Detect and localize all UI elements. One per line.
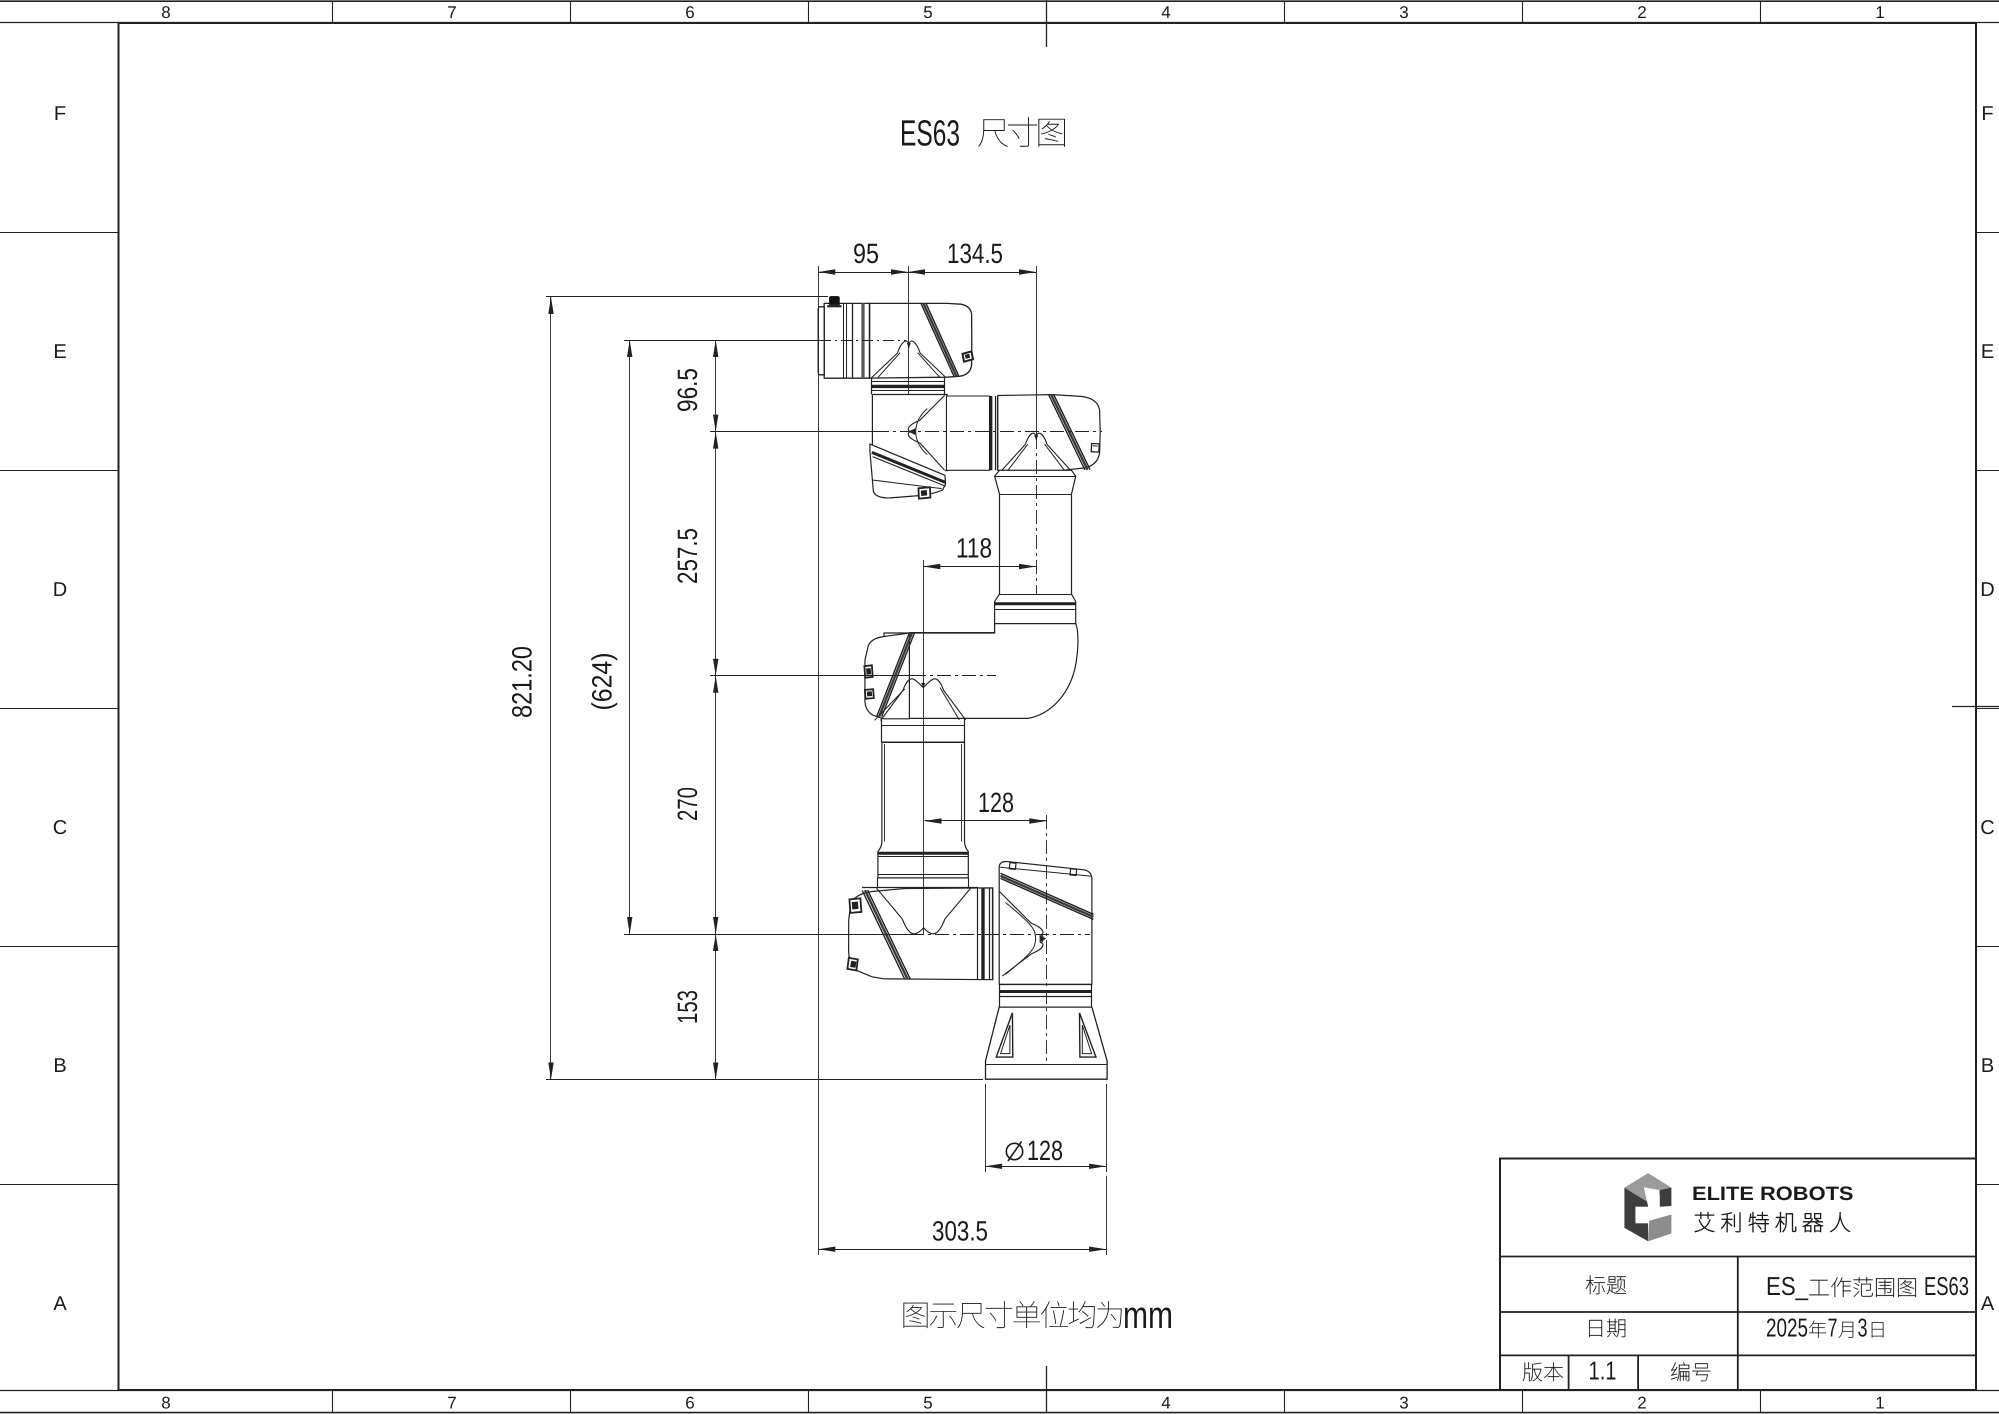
svg-text:96.5: 96.5 [672, 368, 703, 412]
svg-text:2: 2 [1637, 1394, 1646, 1413]
svg-text:821.20: 821.20 [507, 646, 538, 718]
svg-text:95: 95 [853, 238, 879, 269]
svg-text:7: 7 [447, 1394, 456, 1413]
svg-text:8: 8 [161, 3, 170, 22]
svg-text:3: 3 [1858, 1313, 1868, 1343]
svg-text:270: 270 [672, 787, 703, 821]
svg-text:118: 118 [956, 533, 992, 564]
svg-text:1: 1 [1875, 3, 1884, 22]
svg-text:2: 2 [1637, 3, 1646, 22]
svg-text:8: 8 [161, 1394, 170, 1413]
svg-text:5: 5 [923, 3, 932, 22]
svg-text:3: 3 [1399, 1394, 1408, 1413]
svg-text:ELITE ROBOTS: ELITE ROBOTS [1692, 1183, 1854, 1205]
svg-text:E: E [53, 341, 66, 363]
svg-text:ES63: ES63 [900, 113, 960, 154]
svg-text:7: 7 [1828, 1313, 1838, 1343]
svg-text:D: D [1980, 579, 1994, 601]
svg-text:1: 1 [1875, 1394, 1884, 1413]
svg-text:257.5: 257.5 [672, 528, 703, 584]
svg-text:C: C [1980, 817, 1994, 839]
svg-text:6: 6 [685, 1394, 694, 1413]
svg-text:128: 128 [1027, 1135, 1063, 1166]
svg-text:5: 5 [923, 1394, 932, 1413]
svg-text:2025: 2025 [1766, 1313, 1808, 1343]
svg-text:B: B [1981, 1055, 1994, 1077]
svg-text:F: F [54, 103, 66, 125]
svg-text:C: C [53, 817, 67, 839]
svg-text:B: B [53, 1055, 66, 1077]
svg-text:mm: mm [1123, 1295, 1173, 1337]
svg-text:ES63: ES63 [1924, 1271, 1969, 1301]
svg-text:(624): (624) [587, 653, 618, 711]
svg-text:1.1: 1.1 [1589, 1356, 1617, 1386]
svg-text:128: 128 [978, 787, 1014, 818]
svg-text:153: 153 [672, 990, 703, 1024]
svg-text:D: D [53, 579, 67, 601]
svg-text:A: A [1981, 1293, 1995, 1315]
svg-text:A: A [53, 1293, 67, 1315]
svg-text:7: 7 [447, 3, 456, 22]
svg-text:134.5: 134.5 [947, 238, 1003, 269]
svg-text:303.5: 303.5 [932, 1216, 988, 1247]
svg-text:4: 4 [1161, 1394, 1170, 1413]
svg-text:ES_: ES_ [1766, 1271, 1808, 1301]
svg-text:F: F [1981, 103, 1993, 125]
svg-text:3: 3 [1399, 3, 1408, 22]
svg-text:E: E [1981, 341, 1994, 363]
svg-text:4: 4 [1161, 3, 1170, 22]
svg-text:6: 6 [685, 3, 694, 22]
